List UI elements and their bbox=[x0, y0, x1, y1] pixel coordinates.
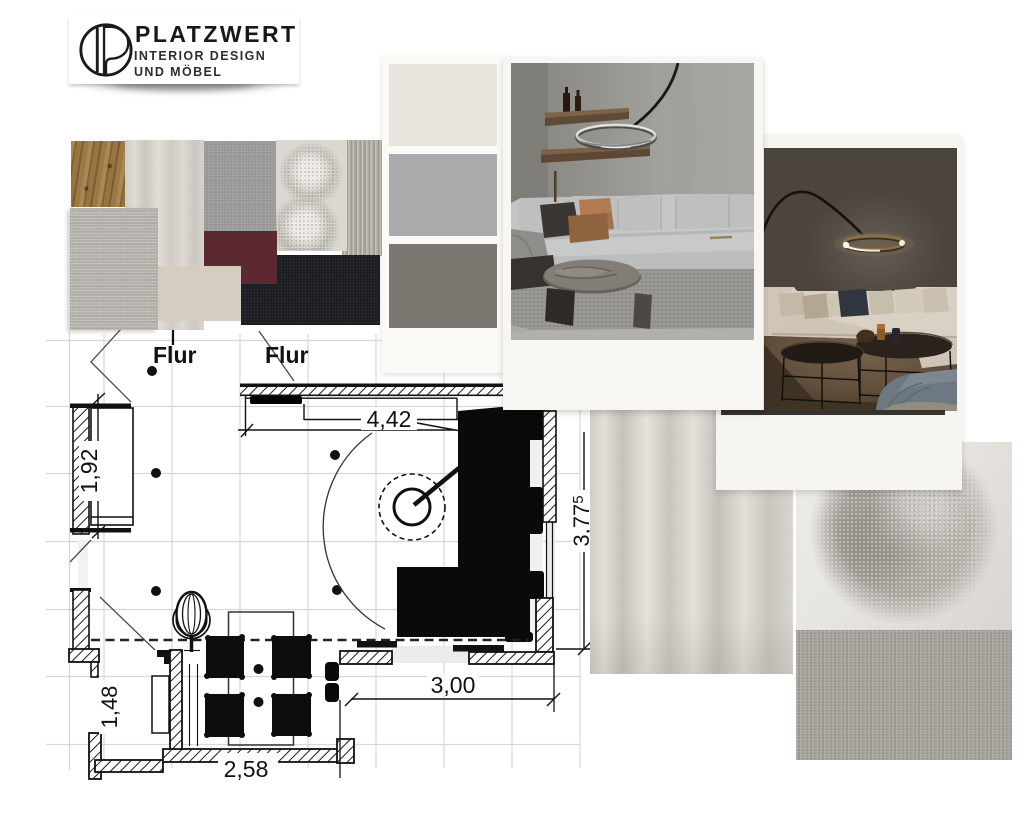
svg-text:Flur: Flur bbox=[153, 342, 196, 368]
svg-text:4,42: 4,42 bbox=[367, 406, 412, 432]
svg-text:1,48: 1,48 bbox=[97, 686, 122, 729]
svg-text:2,58: 2,58 bbox=[224, 756, 269, 782]
svg-text:1,92: 1,92 bbox=[76, 449, 102, 494]
svg-text:Flur: Flur bbox=[265, 342, 308, 368]
svg-text:3,00: 3,00 bbox=[431, 672, 476, 698]
